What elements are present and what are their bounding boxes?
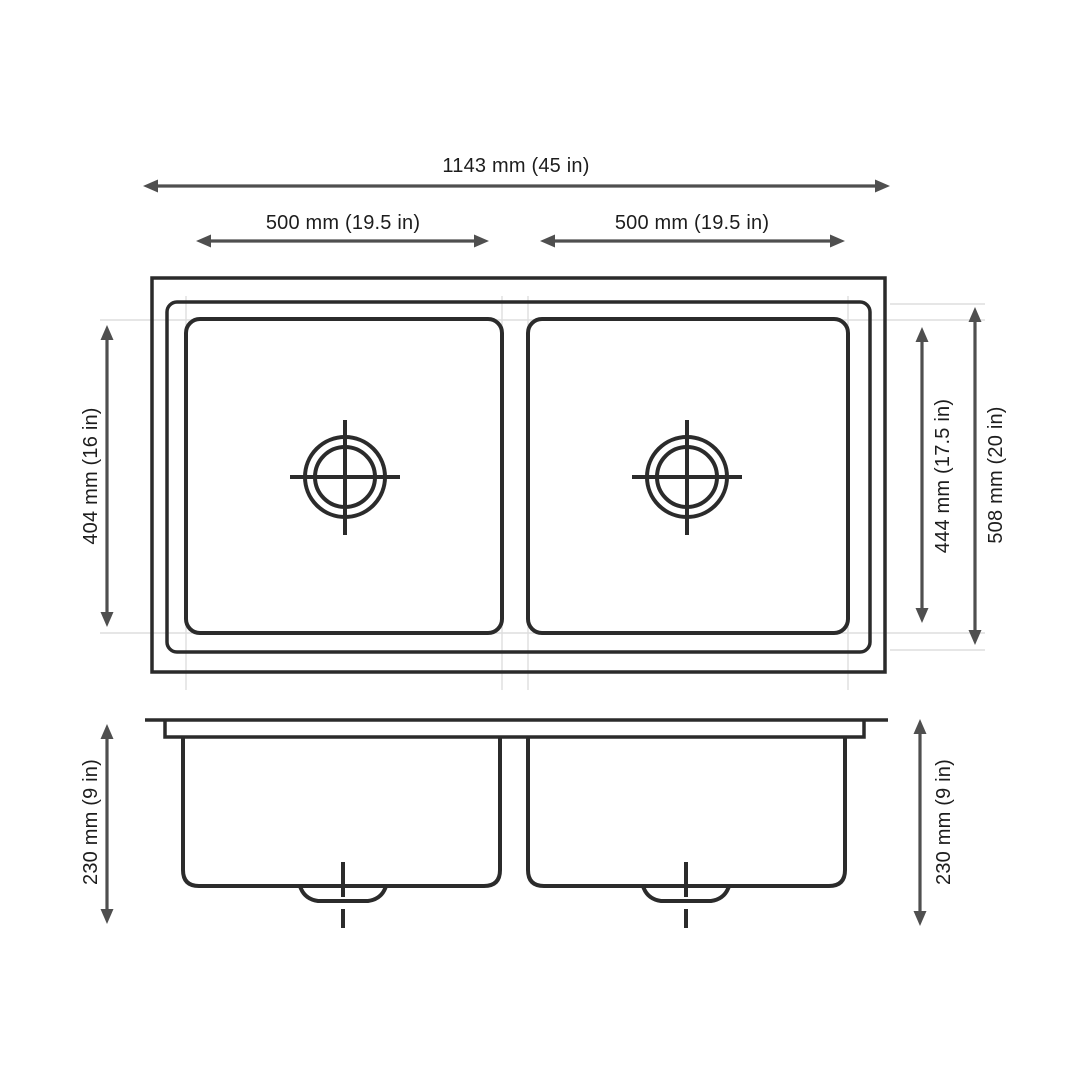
left-bowl-depth-label: 230 mm (9 in): [80, 759, 102, 885]
sink-rim: [167, 302, 870, 652]
inner-front-to-back-dimension: 444 mm (17.5 in): [916, 327, 955, 623]
sink-outer-edge: [152, 278, 885, 672]
bowl-front-to-back-label: 404 mm (16 in): [80, 407, 102, 544]
arrowhead-up-icon: [101, 325, 114, 340]
front-view: [145, 720, 888, 928]
overall-width-label: 1143 mm (45 in): [442, 155, 589, 177]
left-drain-crosshair-icon: [290, 420, 400, 535]
left-bowl-width-label: 500 mm (19.5 in): [266, 212, 420, 234]
sink-dimension-diagram: 1143 mm (45 in) 500 mm (19.5 in) 500 mm …: [0, 0, 1080, 1080]
right-bowl-width-label: 500 mm (19.5 in): [615, 212, 769, 234]
right-bowl-depth-dimension: 230 mm (9 in): [914, 719, 956, 926]
sink-flange: [165, 720, 864, 737]
top-view: [152, 278, 885, 672]
diagram-svg: 1143 mm (45 in) 500 mm (19.5 in) 500 mm …: [0, 0, 1080, 1080]
left-bowl-depth-dimension: 230 mm (9 in): [80, 724, 114, 924]
arrowhead-right-icon: [875, 180, 890, 193]
arrowhead-left-icon: [143, 180, 158, 193]
overall-width-dimension: 1143 mm (45 in): [143, 155, 890, 193]
right-drain-crosshair-icon: [632, 420, 742, 535]
arrowhead-right-icon: [474, 235, 489, 248]
right-bowl-width-dimension: 500 mm (19.5 in): [540, 212, 845, 248]
bowl-front-to-back-dimension: 404 mm (16 in): [80, 325, 114, 627]
arrowhead-left-icon: [540, 235, 555, 248]
extension-lines: [100, 296, 985, 690]
arrowhead-down-icon: [101, 612, 114, 627]
overall-front-to-back-label: 508 mm (20 in): [985, 406, 1007, 543]
arrowhead-up-icon: [914, 719, 927, 734]
arrowhead-down-icon: [969, 630, 982, 645]
arrowhead-right-icon: [830, 235, 845, 248]
arrowhead-up-icon: [101, 724, 114, 739]
inner-front-to-back-label: 444 mm (17.5 in): [932, 399, 954, 553]
arrowhead-down-icon: [914, 911, 927, 926]
overall-front-to-back-dimension: 508 mm (20 in): [969, 307, 1008, 645]
arrowhead-up-icon: [969, 307, 982, 322]
arrowhead-down-icon: [101, 909, 114, 924]
left-drain-front-icon: [300, 862, 386, 928]
arrowhead-down-icon: [916, 608, 929, 623]
arrowhead-left-icon: [196, 235, 211, 248]
left-bowl-width-dimension: 500 mm (19.5 in): [196, 212, 489, 248]
arrowhead-up-icon: [916, 327, 929, 342]
right-drain-front-icon: [643, 862, 729, 928]
right-bowl-depth-label: 230 mm (9 in): [933, 759, 955, 885]
